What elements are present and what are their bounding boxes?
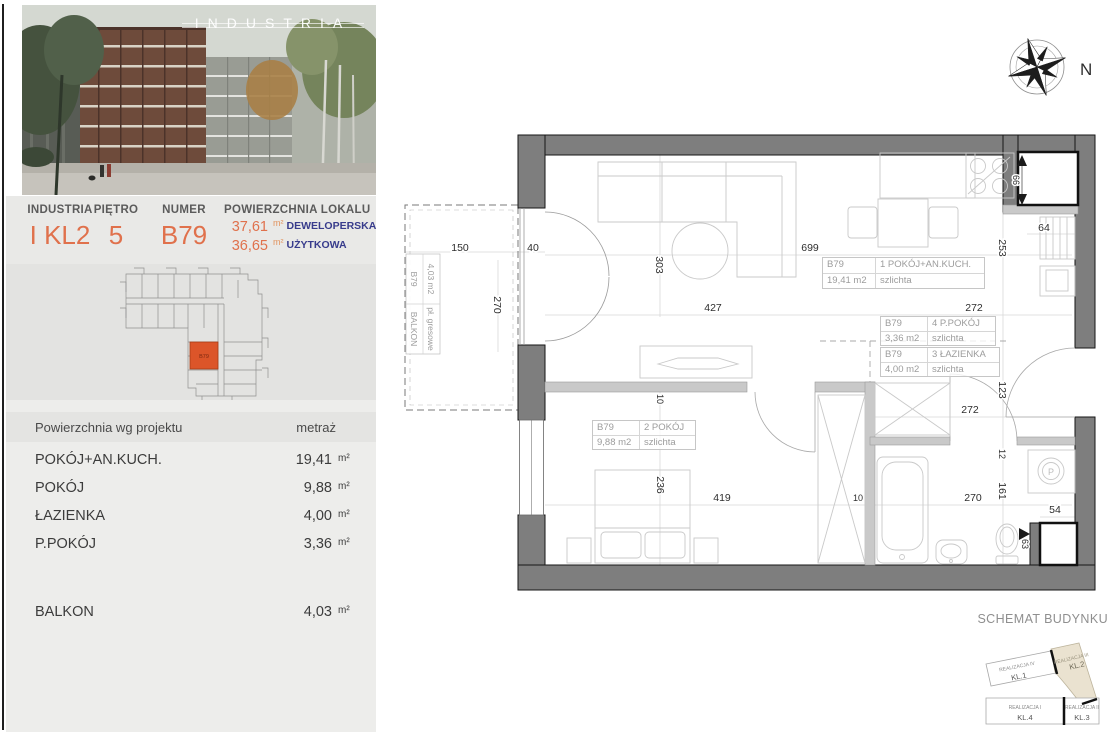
table-row: POKÓJ+AN.KUCH. 19,41 m² — [6, 446, 376, 474]
summary-value-number: B79 — [154, 220, 214, 251]
bedroom-door — [755, 392, 815, 452]
building-schematic: SCHEMAT BUDYNKU REALIZACJA IV KL.1 REALI… — [955, 612, 1120, 732]
balcony-unit: B79 — [409, 271, 419, 286]
area-developer-row: 37,61m²DEWELOPERSKA — [224, 218, 374, 235]
room-area-value: 9,88 — [280, 480, 332, 496]
dog-figure — [89, 176, 96, 181]
svg-text:66: 66 — [1011, 175, 1021, 185]
room-area-unit: m² — [338, 481, 362, 492]
bedroom-wardrobe — [818, 395, 865, 563]
svg-text:40: 40 — [527, 242, 539, 254]
room-area: 9,88 m2 — [593, 435, 639, 449]
hero-photo: INDUSTRIA — [22, 5, 376, 195]
room-unit: B79 — [593, 421, 639, 435]
svg-text:10: 10 — [655, 394, 665, 404]
room-name: 3 ŁAZIENKA — [927, 348, 999, 362]
area-usable-value: 36,65 — [224, 238, 268, 254]
hero-brand-overlay: INDUSTRIA — [182, 15, 364, 35]
room-name: ŁAZIENKA — [35, 508, 105, 524]
block-kl2-highlighted — [1051, 643, 1097, 705]
table-row: ŁAZIENKA 4,00 m² — [6, 502, 376, 530]
round-table — [672, 223, 728, 279]
summary-label: POWIERZCHNIA LOKALU — [224, 204, 374, 216]
summary-value-floor: 5 — [86, 220, 146, 251]
summary-col-floor: PIĘTRO 5 — [86, 196, 146, 264]
area-usable-kind: UŻYTKOWA — [287, 239, 347, 251]
floor-plan-drawing: B79 4,03 m2 BALKON pł. gresowe — [400, 120, 1120, 620]
compass-north-label: N — [1080, 60, 1092, 79]
stair-label: KL.4 — [1017, 713, 1032, 722]
svg-text:699: 699 — [801, 242, 819, 254]
svg-text:253: 253 — [996, 239, 1008, 257]
room-unit: B79 — [823, 258, 875, 273]
room-name: 2 POKÓJ — [639, 421, 695, 435]
svg-text:427: 427 — [704, 302, 722, 314]
sidebar: INDUSTRIA INDUSTRIA I KL2 PIĘTRO 5 NUMER… — [0, 0, 376, 732]
room-unit: B79 — [881, 348, 927, 362]
site-plan-unit-label: B79 — [199, 354, 209, 360]
room-label-hall: B79 4 P.POKÓJ 3,36 m2 szlichta — [880, 316, 996, 346]
bedroom-window — [520, 420, 544, 515]
summary-label: NUMER — [154, 204, 214, 216]
room-name: POKÓJ — [35, 480, 84, 496]
summary-label: PIĘTRO — [86, 204, 146, 216]
area-table-header: Powierzchnia wg projektu metraż — [6, 412, 376, 442]
floor-plan-area: N — [376, 0, 1120, 732]
compass-icon: N — [992, 25, 1112, 115]
room-area: 19,41 m2 — [823, 273, 875, 288]
room-unit: B79 — [881, 317, 927, 331]
area-usable-row: 36,65m²UŻYTKOWA — [224, 237, 374, 254]
room-area-unit: m² — [338, 453, 362, 464]
balcony-area: 4,03 m2 — [426, 264, 436, 295]
brand-decor-line — [182, 23, 364, 24]
svg-text:236: 236 — [654, 476, 666, 494]
room-name: P.POKÓJ — [35, 536, 96, 552]
unit-summary-band: INDUSTRIA I KL2 PIĘTRO 5 NUMER B79 POWIE… — [6, 196, 376, 264]
svg-text:161: 161 — [996, 482, 1008, 500]
outer-walls — [518, 135, 1095, 590]
svg-text:12: 12 — [997, 449, 1007, 459]
area-unit: m² — [273, 237, 284, 247]
person-figure — [100, 165, 104, 177]
room-floor-type: szlichta — [639, 435, 695, 449]
svg-text:272: 272 — [961, 404, 979, 416]
svg-text:123: 123 — [996, 381, 1008, 399]
room-area-value: 4,03 — [280, 604, 332, 620]
room-label-bathroom: B79 3 ŁAZIENKA 4,00 m2 szlichta — [880, 347, 1000, 377]
table-row: POKÓJ 9,88 m² — [6, 474, 376, 502]
room-name: POKÓJ+AN.KUCH. — [35, 452, 162, 468]
person-figure — [107, 164, 111, 177]
corner-sofa — [598, 162, 796, 277]
area-unit: m² — [273, 218, 284, 228]
room-label-living-kitchen: B79 1 POKÓJ+AN.KUCH. 19,41 m2 szlichta — [822, 257, 985, 289]
svg-text:270: 270 — [964, 492, 982, 504]
room-area: 4,00 m2 — [881, 362, 927, 376]
room-area-unit: m² — [338, 537, 362, 548]
room-area-value: 19,41 — [280, 452, 332, 468]
brand-decor-line — [182, 27, 364, 28]
svg-text:270: 270 — [491, 296, 503, 314]
balcony-name: BALKON — [409, 312, 419, 347]
washer-symbol: P — [1048, 467, 1054, 477]
balcony-label: B79 4,03 m2 BALKON pł. gresowe — [406, 254, 440, 354]
room-area-unit: m² — [338, 605, 362, 616]
table-header-left: Powierzchnia wg projektu — [35, 420, 182, 435]
page: INDUSTRIA INDUSTRIA I KL2 PIĘTRO 5 NUMER… — [0, 0, 1120, 732]
room-label-bedroom: B79 2 POKÓJ 9,88 m2 szlichta — [592, 420, 696, 450]
room-floor-type: szlichta — [927, 331, 995, 345]
svg-text:64: 64 — [1038, 222, 1050, 234]
svg-text:272: 272 — [965, 302, 983, 314]
hall-closet — [875, 383, 950, 435]
building-schematic-diagram: REALIZACJA IV KL.1 REALIZACJA III KL.2 R… — [958, 638, 1118, 730]
balcony-floor-type: pł. gresowe — [426, 307, 436, 351]
room-floor-type: szlichta — [875, 273, 984, 288]
area-developer-value: 37,61 — [224, 219, 268, 235]
double-bed — [567, 470, 718, 563]
table-row: BALKON 4,03 m² — [6, 598, 376, 626]
room-name: 4 P.POKÓJ — [927, 317, 995, 331]
svg-text:419: 419 — [713, 492, 731, 504]
shaft-bottom — [1040, 523, 1077, 565]
table-header-right: metraż — [296, 420, 336, 435]
balcony-door — [520, 208, 609, 345]
room-area-value: 3,36 — [280, 536, 332, 552]
svg-text:63: 63 — [1020, 539, 1030, 549]
room-area: 3,36 m2 — [881, 331, 927, 345]
entrance-door — [1006, 348, 1075, 417]
shaft-top — [1018, 152, 1078, 205]
floor-overview-band: B79 — [6, 264, 376, 400]
washbasin — [936, 540, 967, 564]
realization-label: REALIZACJA II — [1065, 705, 1099, 711]
svg-text:54: 54 — [1049, 504, 1061, 516]
dining-table-chairs — [848, 199, 958, 247]
room-name: 1 POKÓJ+AN.KUCH. — [875, 258, 984, 273]
svg-text:10: 10 — [853, 493, 863, 503]
realization-label: REALIZACJA I — [1009, 705, 1042, 711]
summary-col-number: NUMER B79 — [154, 196, 214, 264]
summary-col-area: POWIERZCHNIA LOKALU 37,61m²DEWELOPERSKA … — [224, 196, 374, 254]
stair-label: KL.1 — [1010, 671, 1027, 683]
area-table-band: Powierzchnia wg projektu metraż POKÓJ+AN… — [6, 400, 376, 732]
floor-overview-plan: B79 — [112, 264, 292, 404]
stair-label: KL.3 — [1074, 713, 1089, 722]
tv-cabinet — [640, 346, 752, 378]
room-area-unit: m² — [338, 509, 362, 520]
room-floor-type: szlichta — [927, 362, 999, 376]
room-name: BALKON — [35, 604, 94, 620]
area-developer-kind: DEWELOPERSKA — [287, 220, 377, 232]
table-row: P.POKÓJ 3,36 m² — [6, 530, 376, 558]
svg-text:303: 303 — [653, 256, 665, 274]
room-area-value: 4,00 — [280, 508, 332, 524]
building-schematic-title: SCHEMAT BUDYNKU — [955, 612, 1120, 626]
bathtub — [877, 457, 928, 563]
toilet — [996, 524, 1018, 564]
area-table-rows: POKÓJ+AN.KUCH. 19,41 m² POKÓJ 9,88 m² ŁA… — [6, 446, 376, 626]
kitchen-counter — [880, 153, 975, 198]
svg-text:150: 150 — [451, 242, 469, 254]
